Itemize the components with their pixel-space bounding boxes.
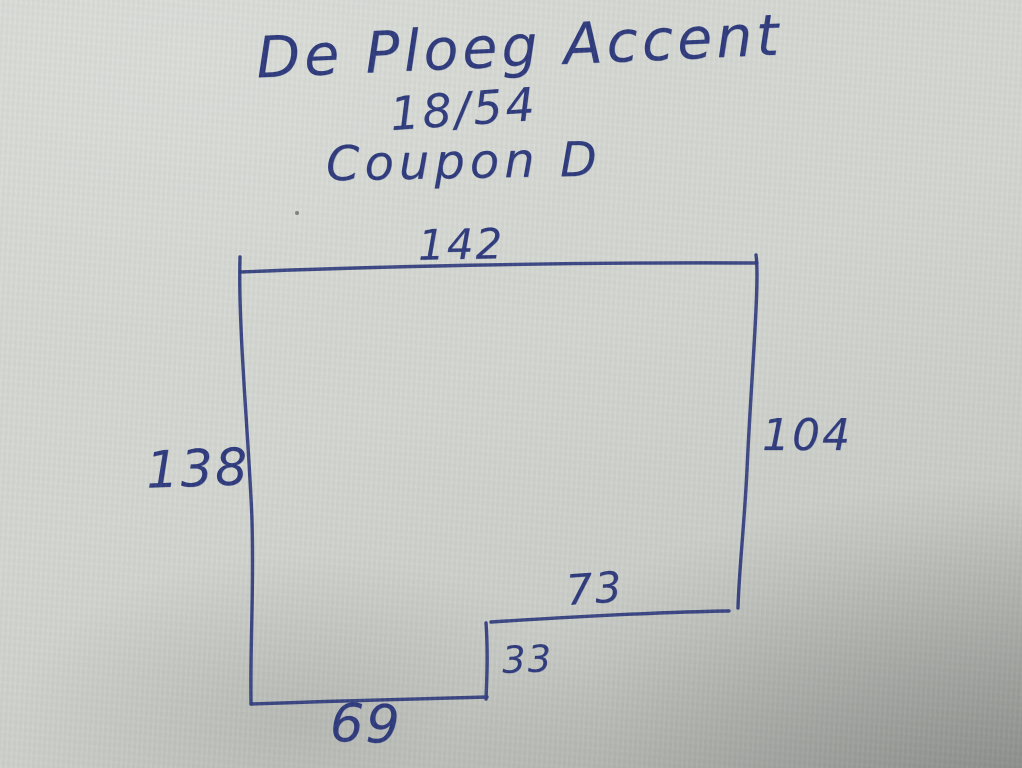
- title-line-2: 18/54: [388, 77, 539, 141]
- outline-notch-edge: [486, 623, 487, 699]
- paper-speck: [295, 211, 299, 215]
- title-line-3: Coupon D: [326, 132, 603, 193]
- dimension-label-left: 138: [145, 438, 250, 501]
- dimension-label-notch: 33: [501, 637, 554, 682]
- dimension-label-top: 142: [418, 219, 505, 269]
- dimension-label-right: 104: [762, 410, 852, 461]
- outline-right-edge: [738, 255, 757, 608]
- paper-photo: De Ploeg Accent 18/54 Coupon D 142 104 1…: [0, 0, 1022, 768]
- outline-step-edge: [491, 611, 729, 622]
- dimension-label-step: 73: [564, 562, 625, 615]
- dimension-label-bottom: 69: [329, 693, 403, 756]
